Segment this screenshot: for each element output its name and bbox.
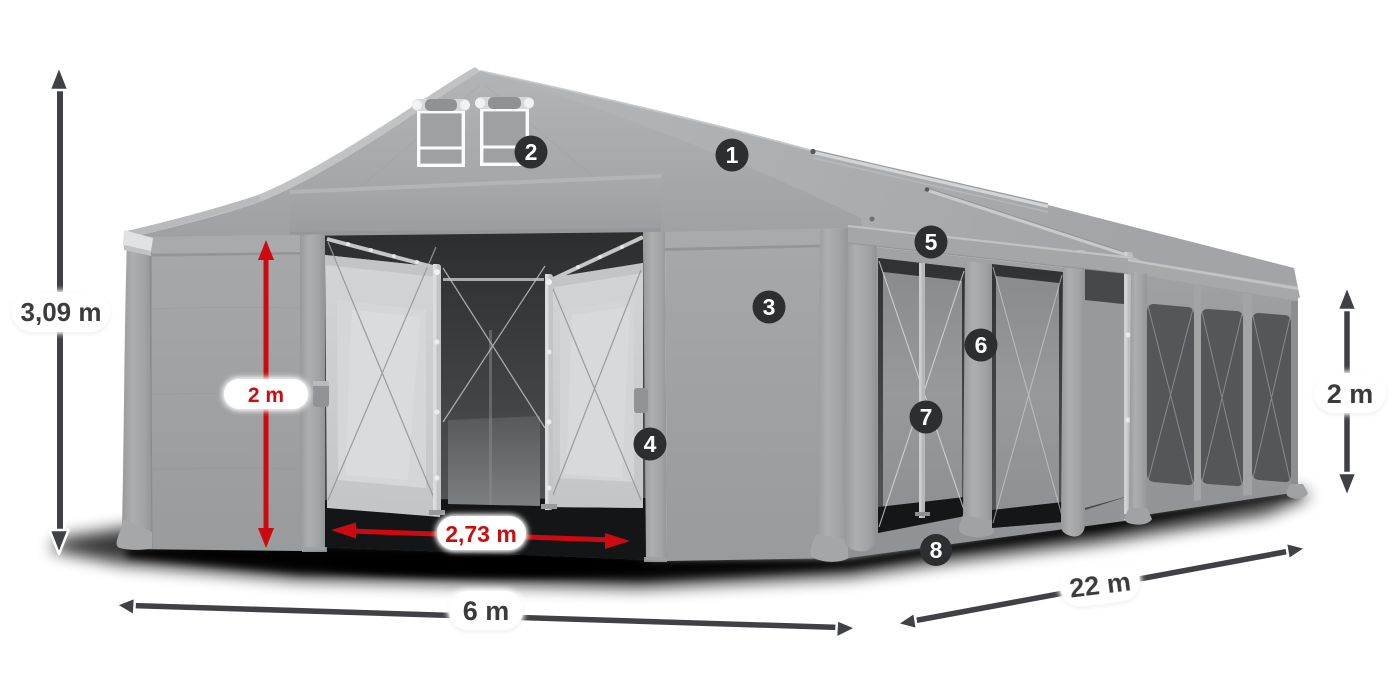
svg-text:8: 8 — [930, 537, 943, 563]
svg-text:3,09 m: 3,09 m — [21, 297, 102, 327]
svg-text:2: 2 — [525, 139, 538, 165]
svg-text:5: 5 — [925, 229, 938, 255]
svg-text:2,73 m: 2,73 m — [445, 521, 517, 547]
svg-text:6 m: 6 m — [463, 596, 510, 626]
svg-text:2 m: 2 m — [1327, 379, 1374, 409]
svg-text:3: 3 — [763, 294, 776, 320]
svg-text:6: 6 — [975, 332, 988, 358]
svg-text:7: 7 — [920, 404, 933, 430]
svg-text:4: 4 — [644, 431, 657, 457]
svg-text:2 m: 2 m — [248, 384, 284, 407]
svg-text:1: 1 — [726, 142, 739, 168]
